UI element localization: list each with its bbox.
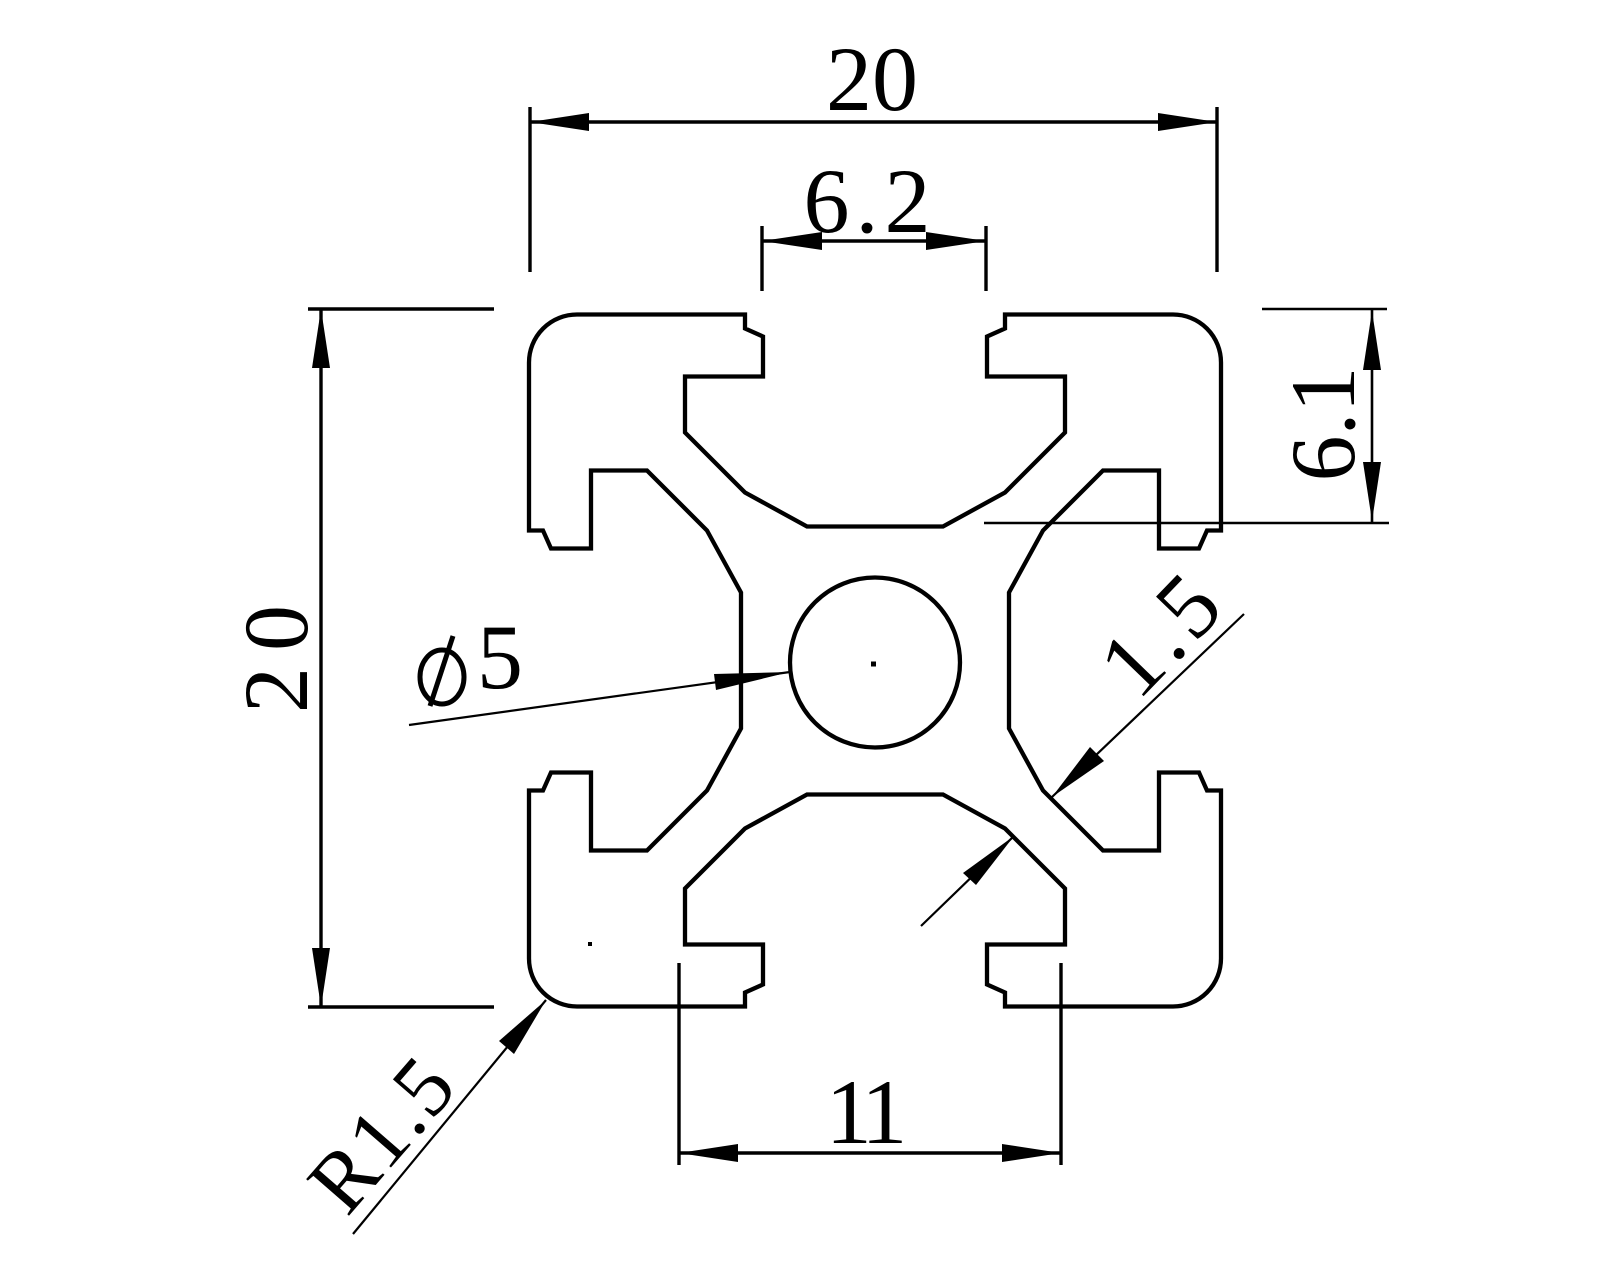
svg-text:5: 5 [477, 606, 523, 708]
svg-text:6.2: 6.2 [804, 150, 937, 252]
svg-text:20: 20 [826, 28, 918, 130]
svg-text:11: 11 [826, 1061, 903, 1163]
svg-text:6.1: 6.1 [1272, 367, 1374, 482]
svg-text:20: 20 [225, 589, 327, 713]
